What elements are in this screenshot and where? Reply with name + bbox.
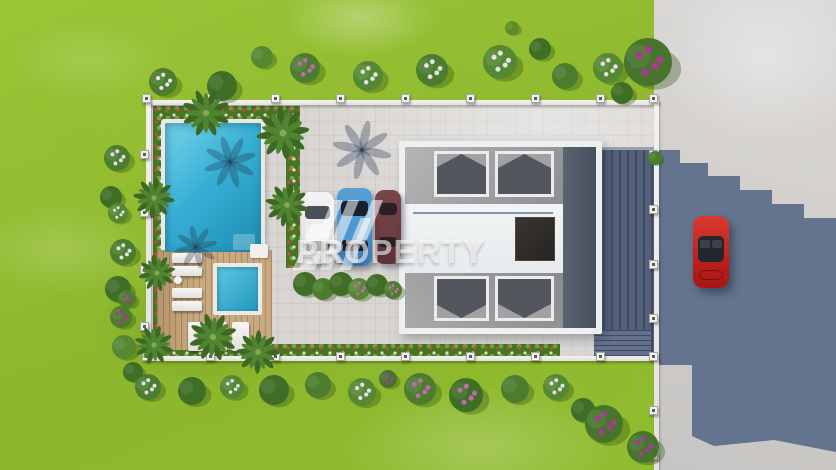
car-roof bbox=[305, 219, 330, 241]
building-shadow bbox=[654, 0, 836, 470]
fence-post bbox=[466, 94, 475, 103]
fence-post bbox=[142, 94, 151, 103]
swimming-pool bbox=[165, 123, 261, 252]
fence-post bbox=[649, 451, 658, 460]
roof-panel bbox=[495, 151, 554, 197]
parked-car-maroon bbox=[375, 190, 401, 264]
fence-post bbox=[649, 150, 658, 159]
fence-post bbox=[649, 260, 658, 269]
fence-post bbox=[140, 150, 149, 159]
roof-shadow-slope bbox=[563, 147, 596, 328]
fence-post bbox=[596, 352, 605, 361]
roof-edge-line bbox=[413, 212, 553, 214]
sun-lounger bbox=[210, 322, 227, 351]
car-seat bbox=[712, 240, 722, 248]
roof-panel bbox=[434, 151, 489, 197]
fence-post bbox=[206, 94, 215, 103]
fence-post bbox=[401, 94, 410, 103]
fence-post bbox=[271, 94, 280, 103]
roof-panel bbox=[434, 276, 489, 321]
pool-ladder-mat bbox=[250, 244, 268, 258]
car-roof bbox=[341, 216, 368, 240]
fence-post bbox=[649, 205, 658, 214]
fence-post bbox=[401, 352, 410, 361]
fence-post bbox=[142, 352, 151, 361]
aerial-villa-render: ART PROPERTY bbox=[0, 0, 836, 470]
flower-bed-top bbox=[153, 106, 300, 120]
fence-post bbox=[140, 322, 149, 331]
car-seat bbox=[700, 240, 710, 248]
villa-house bbox=[399, 141, 602, 334]
sun-lounger bbox=[188, 322, 205, 351]
fence-post bbox=[531, 352, 540, 361]
rear-window bbox=[305, 241, 330, 251]
windshield bbox=[379, 203, 397, 215]
street bbox=[654, 0, 836, 470]
sun-lounger bbox=[172, 266, 202, 276]
sun-lounger bbox=[172, 253, 202, 263]
fence-post bbox=[596, 94, 605, 103]
fence-post bbox=[649, 352, 658, 361]
fence-post bbox=[466, 352, 475, 361]
side-table bbox=[174, 276, 182, 284]
fence-post bbox=[649, 314, 658, 323]
parked-car-white bbox=[301, 192, 334, 264]
windshield bbox=[305, 206, 330, 219]
fence-post bbox=[271, 352, 280, 361]
hood-line bbox=[699, 270, 723, 280]
fence-post bbox=[206, 352, 215, 361]
fence-post bbox=[140, 265, 149, 274]
fence-left bbox=[146, 100, 151, 358]
roof-panel bbox=[495, 276, 554, 321]
flat-roof-band bbox=[405, 204, 563, 273]
sun-lounger bbox=[172, 288, 202, 298]
kids-pool bbox=[217, 267, 258, 311]
planter-column bbox=[286, 106, 300, 268]
open-cabin bbox=[698, 236, 724, 262]
rear-window bbox=[341, 240, 368, 251]
shaded-terrace bbox=[595, 147, 654, 358]
sun-lounger bbox=[232, 322, 249, 351]
parked-car-blue bbox=[337, 188, 372, 266]
rear-window bbox=[379, 237, 397, 247]
street-car-red-convertible bbox=[693, 216, 729, 288]
fence-post bbox=[140, 208, 149, 217]
fence-post bbox=[649, 406, 658, 415]
sun-lounger bbox=[172, 301, 202, 311]
fence-post bbox=[649, 94, 658, 103]
fence-post bbox=[531, 94, 540, 103]
fence-post bbox=[336, 94, 345, 103]
car-roof bbox=[379, 215, 397, 237]
windshield bbox=[341, 201, 368, 216]
fence-post bbox=[336, 352, 345, 361]
skylight-panel bbox=[515, 217, 555, 261]
